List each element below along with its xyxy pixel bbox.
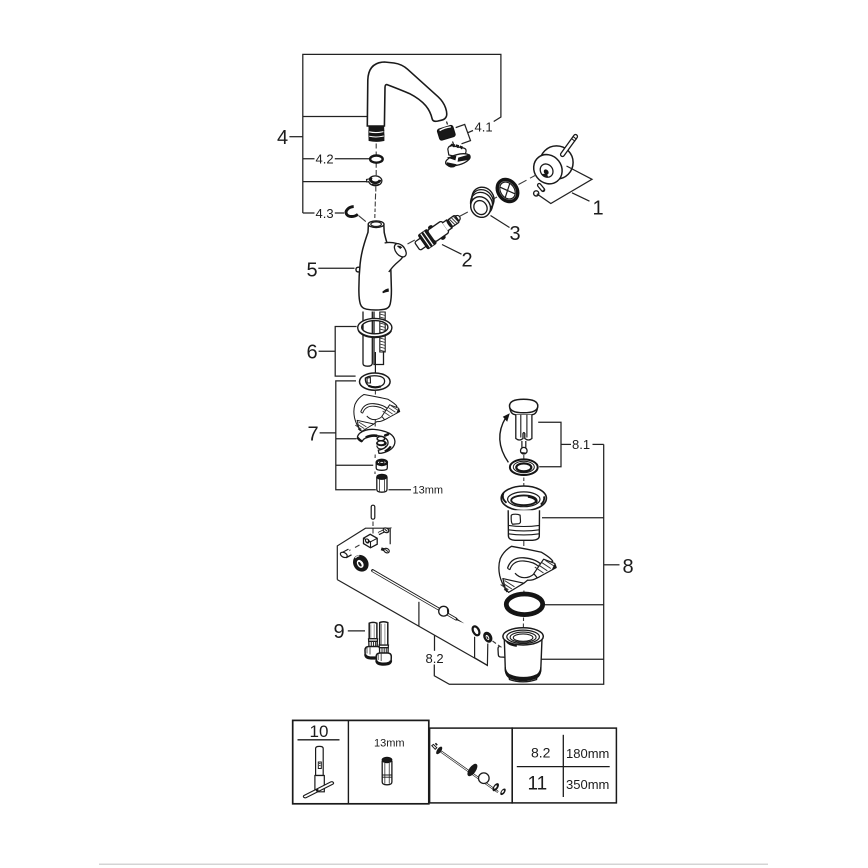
svg-text:11: 11 [528, 774, 548, 795]
svg-text:8: 8 [623, 556, 634, 578]
svg-text:4.3: 4.3 [316, 206, 334, 221]
svg-text:2: 2 [462, 250, 473, 272]
svg-text:4.1: 4.1 [475, 120, 493, 135]
svg-text:6: 6 [307, 342, 318, 364]
svg-text:5: 5 [307, 260, 318, 282]
svg-text:4.2: 4.2 [316, 152, 334, 167]
svg-text:10: 10 [310, 722, 329, 741]
svg-text:8.2: 8.2 [531, 744, 551, 760]
svg-text:3: 3 [510, 223, 521, 245]
svg-text:7: 7 [308, 424, 319, 446]
svg-text:180mm: 180mm [566, 746, 609, 761]
svg-text:350mm: 350mm [566, 777, 609, 792]
svg-text:13mm: 13mm [413, 485, 444, 497]
svg-text:8.1: 8.1 [572, 437, 590, 452]
svg-text:4: 4 [277, 127, 288, 149]
svg-text:8.2: 8.2 [426, 651, 444, 666]
svg-text:9: 9 [334, 621, 345, 643]
svg-text:13mm: 13mm [374, 738, 405, 750]
svg-text:1: 1 [593, 198, 604, 220]
